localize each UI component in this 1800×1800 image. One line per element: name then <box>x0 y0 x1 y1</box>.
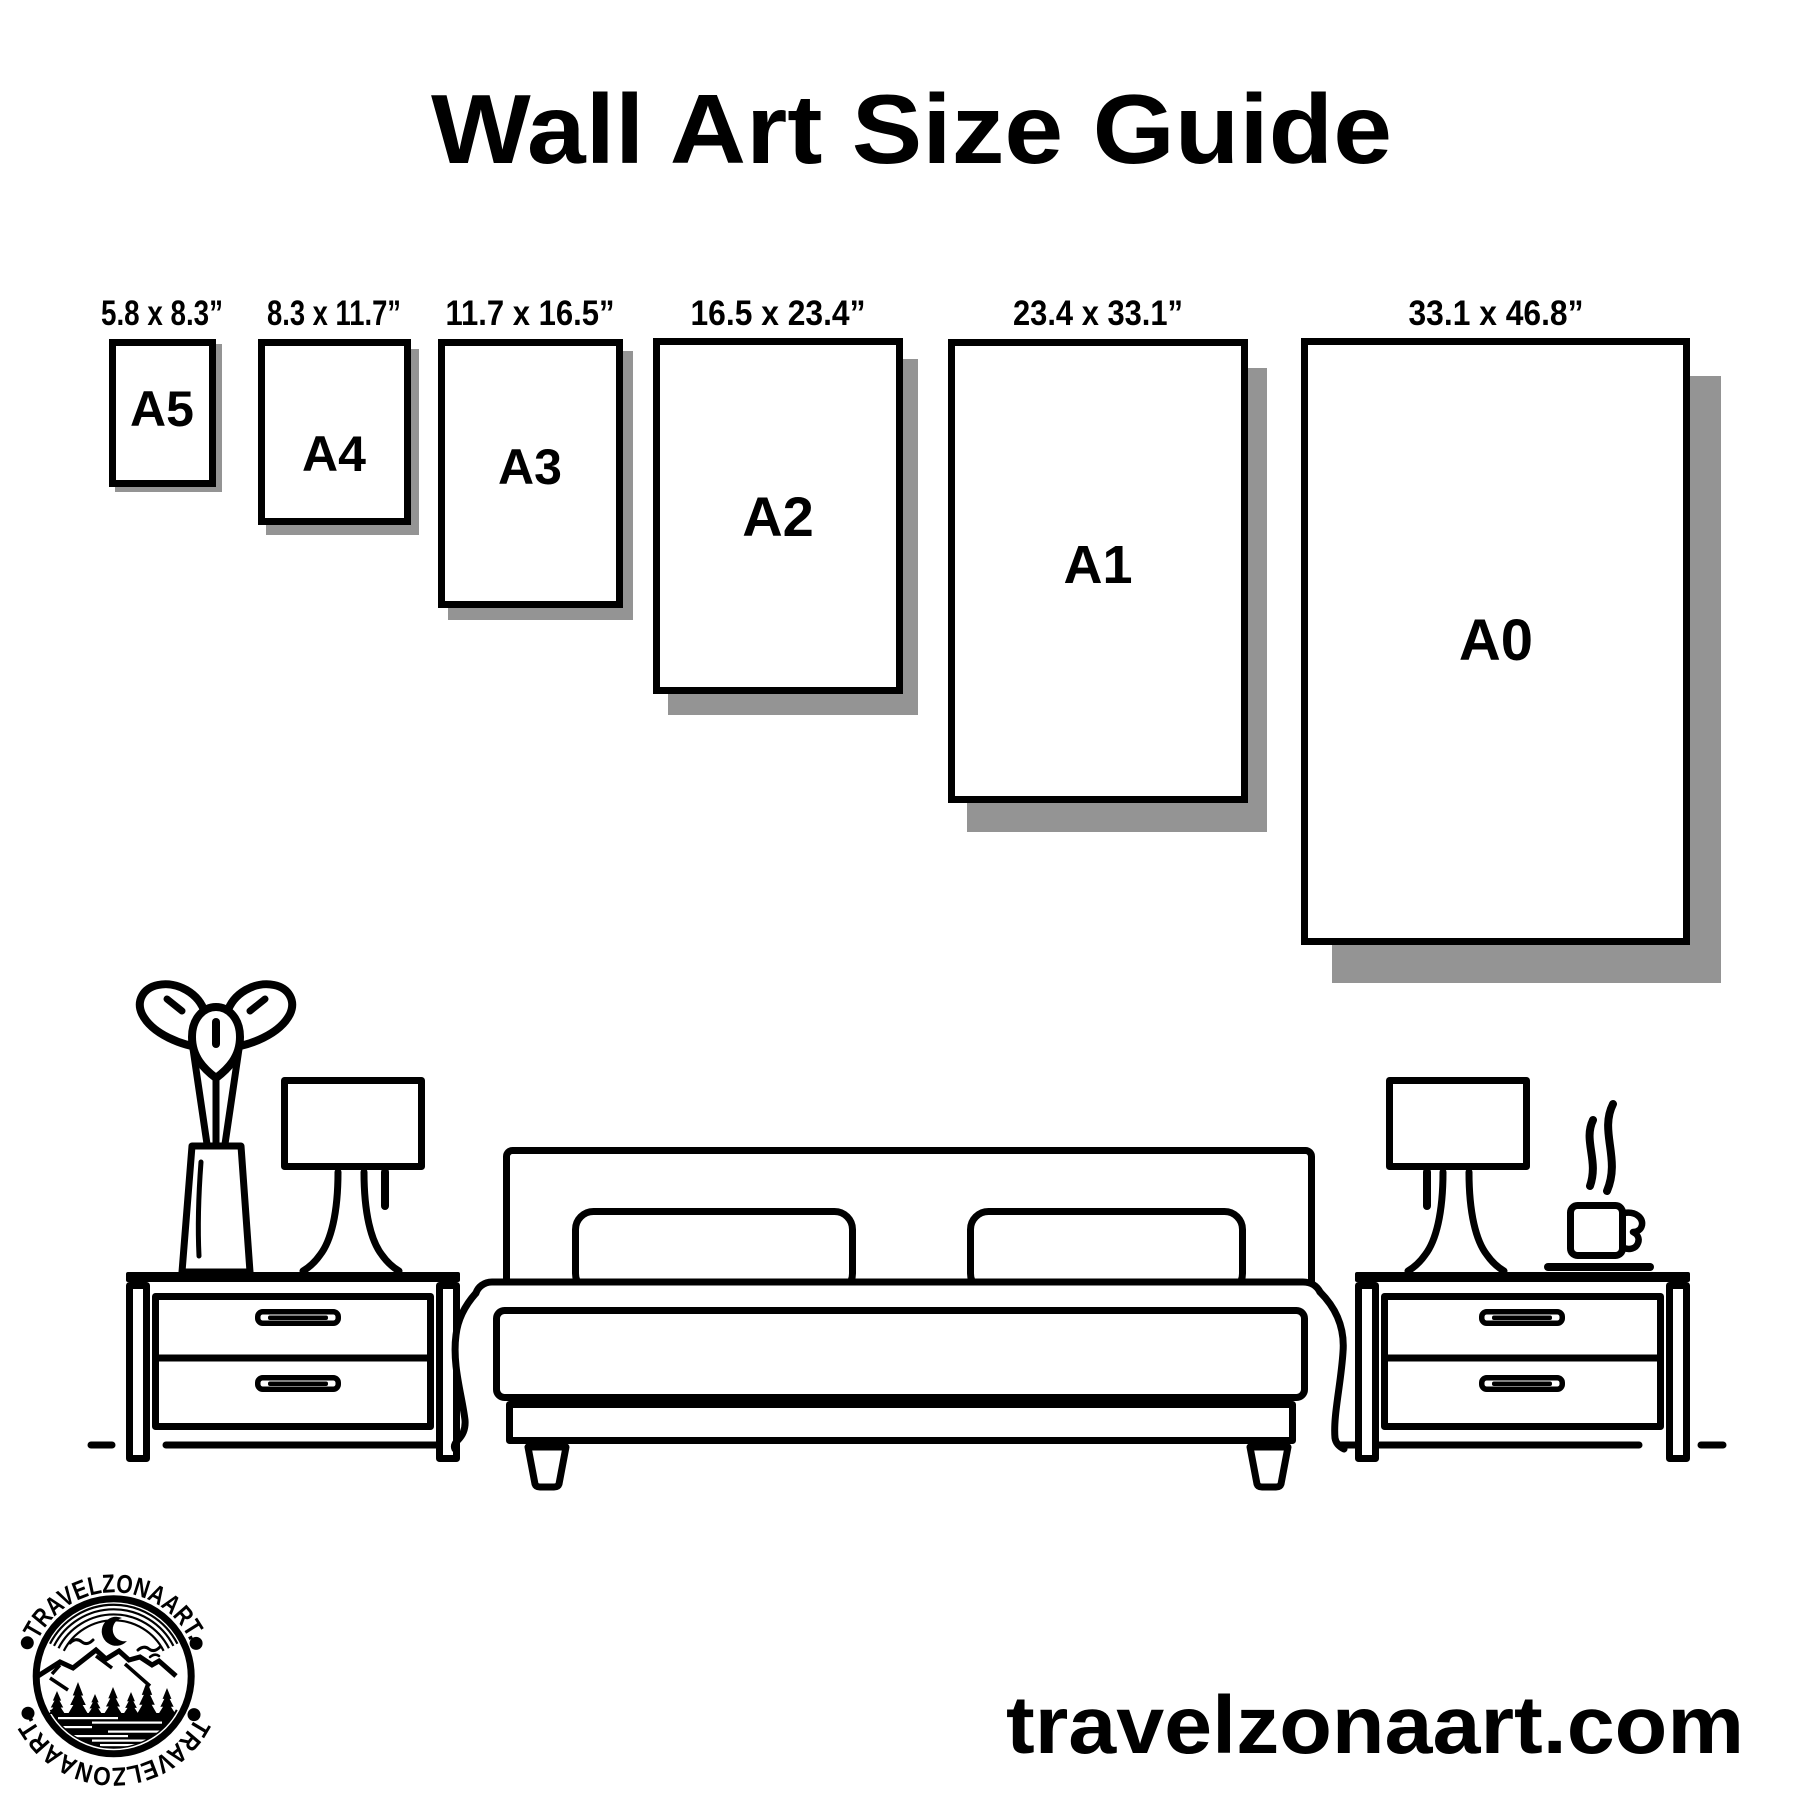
svg-text:A4: A4 <box>302 426 366 482</box>
svg-text:A0: A0 <box>1459 608 1533 673</box>
svg-text:23.4 x 33.1”: 23.4 x 33.1” <box>1013 294 1183 333</box>
svg-text:5.8 x 8.3”: 5.8 x 8.3” <box>101 294 223 333</box>
svg-text:A2: A2 <box>742 485 814 548</box>
svg-text:travelzonaart.com: travelzonaart.com <box>1006 1680 1744 1771</box>
svg-text:A5: A5 <box>130 381 194 437</box>
svg-text:16.5 x 23.4”: 16.5 x 23.4” <box>691 294 866 333</box>
svg-text:33.1 x 46.8”: 33.1 x 46.8” <box>1409 294 1584 333</box>
svg-text:11.7 x 16.5”: 11.7 x 16.5” <box>446 294 615 333</box>
svg-text:A3: A3 <box>498 439 562 495</box>
svg-text:Wall Art Size Guide: Wall Art Size Guide <box>431 74 1392 184</box>
svg-text:A1: A1 <box>1063 535 1132 595</box>
svg-text:8.3 x 11.7”: 8.3 x 11.7” <box>267 294 401 333</box>
